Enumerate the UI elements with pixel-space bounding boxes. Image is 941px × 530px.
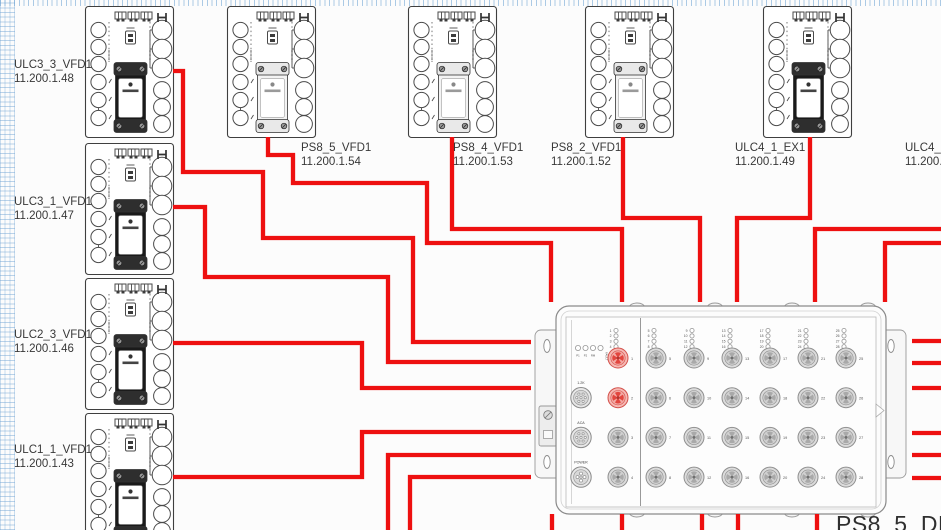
- usb-connector-icon: [268, 31, 278, 44]
- device-port-circle[interactable]: [154, 354, 171, 371]
- device-port-circle[interactable]: [294, 58, 314, 78]
- motor-starter-unit[interactable]: [256, 63, 289, 133]
- brand-logo-icon: [806, 82, 810, 86]
- svg-text:15: 15: [745, 436, 749, 440]
- brand-logo-icon: [128, 219, 132, 223]
- device-port-circle[interactable]: [414, 74, 429, 89]
- brand-logo-icon: [270, 82, 274, 86]
- svg-text:24: 24: [798, 345, 802, 349]
- device-label-PS8_4_VFD1: PS8_4_VFD111.200.1.53: [453, 142, 523, 169]
- device-port-circle[interactable]: [91, 481, 106, 496]
- device-port-circle[interactable]: [91, 382, 106, 397]
- bracket-hole: [888, 340, 894, 353]
- device-label-ULC1_1_VFD1: ULC1_1_VFD111.200.1.43: [14, 444, 92, 471]
- svg-text:26: 26: [859, 397, 863, 401]
- status-led: [583, 345, 588, 350]
- device-label-PS8_2_VFD1: PS8_2_VFD111.200.1.52: [551, 142, 621, 169]
- device-ip: 11.200.1: [905, 156, 941, 168]
- svg-text:8: 8: [648, 345, 650, 349]
- device-name: PS8_5_VFD1: [301, 142, 371, 154]
- device-label-PS8_5_VFD1: PS8_5_VFD111.200.1.54: [301, 142, 371, 169]
- device-port-circle[interactable]: [152, 157, 172, 177]
- device-port-circle[interactable]: [654, 116, 671, 133]
- svg-text:19: 19: [760, 340, 764, 344]
- svg-text:1.2K: 1.2K: [577, 381, 585, 385]
- device-port-circle[interactable]: [91, 429, 106, 444]
- device-port-circle[interactable]: [152, 311, 172, 331]
- device-ULC3_1_VFD1[interactable]: [86, 144, 174, 275]
- topology-diagram: P1P2RMFAULT12341234567856789101112910111…: [0, 0, 941, 530]
- device-port-circle[interactable]: [414, 56, 429, 71]
- bracket-hole: [544, 456, 550, 469]
- svg-text:12: 12: [684, 345, 688, 349]
- device-port-circle[interactable]: [296, 99, 313, 116]
- device-port-circle[interactable]: [152, 446, 172, 466]
- motor-starter-unit[interactable]: [114, 200, 147, 270]
- svg-text:22: 22: [821, 397, 825, 401]
- device-port-circle[interactable]: [152, 330, 172, 350]
- din-clip: [539, 406, 557, 446]
- device-port-circle[interactable]: [152, 195, 172, 215]
- svg-text:14: 14: [745, 397, 749, 401]
- device-port-circle[interactable]: [91, 364, 106, 379]
- svg-text:26: 26: [836, 334, 840, 338]
- device-port-circle[interactable]: [414, 22, 429, 37]
- device-PS8_2_VFD1[interactable]: [586, 7, 674, 138]
- device-port-circle[interactable]: [91, 463, 106, 478]
- status-led: [598, 345, 603, 350]
- svg-text:POWER: POWER: [574, 461, 588, 465]
- device-port-circle[interactable]: [91, 211, 106, 226]
- svg-text:6: 6: [669, 397, 671, 401]
- svg-text:21: 21: [821, 357, 825, 361]
- svg-text:3: 3: [610, 340, 612, 344]
- device-port-circle[interactable]: [91, 229, 106, 244]
- svg-text:4: 4: [610, 345, 612, 349]
- device-port-circle[interactable]: [154, 371, 171, 388]
- device-port-circle[interactable]: [154, 506, 171, 523]
- device-name: ULC3_1_VFD1: [14, 196, 92, 208]
- svg-text:ACA: ACA: [577, 421, 585, 425]
- device-port-circle[interactable]: [652, 39, 672, 59]
- device-label-ULC3_3_VFD1: ULC3_3_VFD111.200.1.48: [14, 59, 92, 86]
- svg-text:25: 25: [836, 329, 840, 333]
- device-port-circle[interactable]: [654, 82, 671, 99]
- device-name: PS8_4_VFD1: [453, 142, 523, 154]
- device-port-circle[interactable]: [591, 56, 606, 71]
- device-name: ULC2_3_VFD1: [14, 329, 92, 341]
- device-label-ULC4_3_: ULC4_3_11.200.1: [905, 142, 941, 169]
- device-port-circle[interactable]: [154, 116, 171, 133]
- svg-text:17: 17: [760, 329, 764, 333]
- svg-text:9: 9: [707, 357, 709, 361]
- device-port-circle[interactable]: [91, 39, 106, 54]
- usb-connector-icon: [126, 31, 136, 44]
- device-port-circle[interactable]: [475, 58, 495, 78]
- svg-text:28: 28: [859, 476, 863, 480]
- device-port-circle[interactable]: [591, 110, 606, 125]
- device-label-ULC4_1_EX1: ULC4_1_EX111.200.1.49: [735, 142, 805, 169]
- usb-connector-icon: [126, 303, 136, 316]
- device-port-circle[interactable]: [296, 116, 313, 133]
- device-port-circle[interactable]: [91, 446, 106, 461]
- device-port-circle[interactable]: [414, 110, 429, 125]
- device-port-circle[interactable]: [154, 82, 171, 99]
- brand-logo-icon: [628, 82, 632, 86]
- device-ULC1_1_VFD1[interactable]: [86, 414, 174, 530]
- svg-text:13: 13: [722, 329, 726, 333]
- module-label: PS8_5_DRM1: [836, 511, 941, 530]
- device-port-circle[interactable]: [769, 56, 784, 71]
- device-port-circle[interactable]: [154, 253, 171, 270]
- status-led: [590, 345, 595, 350]
- brand-logo-icon: [128, 82, 132, 86]
- drm-module[interactable]: P1P2RMFAULT12341234567856789101112910111…: [535, 303, 906, 517]
- device-port-circle[interactable]: [91, 74, 106, 89]
- svg-text:11: 11: [707, 436, 711, 440]
- device-port-circle[interactable]: [294, 39, 314, 59]
- device-port-circle[interactable]: [154, 388, 171, 405]
- svg-text:20: 20: [783, 476, 787, 480]
- brand-logo-icon: [451, 82, 455, 86]
- svg-text:4: 4: [631, 476, 633, 480]
- device-name: ULC4_3_: [905, 142, 941, 154]
- device-port-circle[interactable]: [91, 56, 106, 71]
- svg-text:13: 13: [745, 357, 749, 361]
- usb-connector-icon: [449, 31, 459, 44]
- svg-text:22: 22: [798, 334, 802, 338]
- device-port-circle[interactable]: [830, 39, 850, 59]
- device-port-circle[interactable]: [769, 110, 784, 125]
- device-port-circle[interactable]: [832, 116, 849, 133]
- svg-text:1: 1: [610, 329, 612, 333]
- device-port-circle[interactable]: [233, 22, 248, 37]
- device-port-circle[interactable]: [154, 236, 171, 253]
- device-port-circle[interactable]: [769, 39, 784, 54]
- device-port-circle[interactable]: [477, 99, 494, 116]
- device-name: ULC1_1_VFD1: [14, 444, 92, 456]
- svg-text:18: 18: [760, 334, 764, 338]
- device-port-circle[interactable]: [477, 82, 494, 99]
- brand-logo-icon: [128, 489, 132, 493]
- device-port-circle[interactable]: [830, 20, 850, 40]
- device-port-circle[interactable]: [832, 82, 849, 99]
- status-led: [575, 345, 580, 350]
- device-name: PS8_2_VFD1: [551, 142, 621, 154]
- device-ip: 11.200.1.53: [453, 156, 513, 168]
- device-port-circle[interactable]: [152, 176, 172, 196]
- cable-module-left-down-2[interactable]: [410, 477, 531, 530]
- device-port-circle[interactable]: [769, 92, 784, 107]
- device-port-circle[interactable]: [91, 110, 106, 125]
- device-ip: 11.200.1.54: [301, 156, 361, 168]
- svg-text:19: 19: [783, 436, 787, 440]
- svg-text:10: 10: [684, 334, 688, 338]
- device-port-circle[interactable]: [591, 92, 606, 107]
- device-port-circle[interactable]: [91, 193, 106, 208]
- device-port-circle[interactable]: [91, 328, 106, 343]
- device-port-circle[interactable]: [152, 20, 172, 40]
- device-port-circle[interactable]: [154, 489, 171, 506]
- device-port-circle[interactable]: [475, 39, 495, 59]
- device-port-circle[interactable]: [233, 92, 248, 107]
- svg-text:24: 24: [821, 476, 825, 480]
- device-port-circle[interactable]: [832, 99, 849, 116]
- bracket-hole: [888, 456, 894, 469]
- device-port-circle[interactable]: [477, 116, 494, 133]
- svg-text:2: 2: [631, 397, 633, 401]
- motor-starter-unit[interactable]: [792, 63, 825, 133]
- device-port-circle[interactable]: [91, 346, 106, 361]
- device-ip: 11.200.1.49: [735, 156, 795, 168]
- device-port-circle[interactable]: [152, 58, 172, 78]
- svg-text:5: 5: [648, 329, 650, 333]
- device-port-circle[interactable]: [91, 517, 106, 530]
- device-port-circle[interactable]: [152, 39, 172, 59]
- device-ULC3_3_VFD1[interactable]: [86, 7, 174, 138]
- motor-starter-unit[interactable]: [437, 63, 470, 133]
- svg-text:3: 3: [631, 436, 633, 440]
- device-port-circle[interactable]: [91, 294, 106, 309]
- device-port-circle[interactable]: [154, 99, 171, 116]
- cable-right-edge-2[interactable]: [885, 243, 941, 302]
- svg-text:6: 6: [648, 334, 650, 338]
- svg-text:2: 2: [610, 334, 612, 338]
- svg-text:15: 15: [722, 340, 726, 344]
- usb-connector-icon: [126, 168, 136, 181]
- svg-text:P1: P1: [576, 354, 580, 358]
- motor-starter-unit[interactable]: [114, 63, 147, 133]
- svg-text:17: 17: [783, 357, 787, 361]
- device-PS8_5_VFD1[interactable]: [228, 7, 316, 138]
- svg-text:23: 23: [821, 436, 825, 440]
- svg-text:16: 16: [745, 476, 749, 480]
- device-port-circle[interactable]: [152, 427, 172, 447]
- diagram-canvas: P1P2RMFAULT12341234567856789101112910111…: [0, 0, 941, 530]
- device-label-ULC3_1_VFD1: ULC3_1_VFD111.200.1.47: [14, 196, 92, 223]
- device-port-circle[interactable]: [414, 92, 429, 107]
- svg-text:16: 16: [722, 345, 726, 349]
- device-port-circle[interactable]: [591, 22, 606, 37]
- motor-starter-unit[interactable]: [114, 335, 147, 405]
- svg-text:7: 7: [648, 340, 650, 344]
- device-port-circle[interactable]: [233, 110, 248, 125]
- svg-text:5: 5: [669, 357, 671, 361]
- cable-right-edge-1[interactable]: [815, 229, 941, 302]
- motor-starter-unit[interactable]: [114, 470, 147, 530]
- usb-connector-icon: [804, 31, 814, 44]
- svg-text:18: 18: [783, 397, 787, 401]
- device-port-circle[interactable]: [769, 22, 784, 37]
- svg-text:11: 11: [684, 340, 688, 344]
- cable-ULC2_3_VFD1[interactable]: [173, 343, 531, 388]
- device-port-circle[interactable]: [91, 92, 106, 107]
- device-port-circle[interactable]: [475, 20, 495, 40]
- device-ip: 11.200.1.47: [14, 210, 74, 222]
- device-port-circle[interactable]: [91, 159, 106, 174]
- svg-text:8: 8: [669, 476, 671, 480]
- device-PS8_4_VFD1[interactable]: [409, 7, 497, 138]
- svg-text:9: 9: [686, 329, 688, 333]
- svg-text:27: 27: [859, 436, 863, 440]
- device-ip: 11.200.1.48: [14, 73, 74, 85]
- device-label-ULC2_3_VFD1: ULC2_3_VFD111.200.1.46: [14, 329, 92, 356]
- svg-text:7: 7: [669, 436, 671, 440]
- usb-connector-icon: [126, 438, 136, 451]
- device-port-circle[interactable]: [830, 58, 850, 78]
- device-port-circle[interactable]: [91, 499, 106, 514]
- device-port-circle[interactable]: [769, 74, 784, 89]
- svg-text:23: 23: [798, 340, 802, 344]
- svg-text:21: 21: [798, 329, 802, 333]
- device-port-circle[interactable]: [91, 22, 106, 37]
- device-name: ULC3_3_VFD1: [14, 59, 92, 71]
- device-port-circle[interactable]: [296, 82, 313, 99]
- device-port-circle[interactable]: [154, 219, 171, 236]
- device-port-circle[interactable]: [91, 247, 106, 262]
- device-port-circle[interactable]: [652, 20, 672, 40]
- bracket-hole: [544, 340, 550, 353]
- svg-text:10: 10: [707, 397, 711, 401]
- cable-PS8_2_VFD1[interactable]: [623, 137, 700, 302]
- svg-text:28: 28: [836, 345, 840, 349]
- device-port-circle[interactable]: [233, 56, 248, 71]
- svg-text:27: 27: [836, 340, 840, 344]
- svg-text:12: 12: [707, 476, 711, 480]
- svg-text:20: 20: [760, 345, 764, 349]
- device-port-circle[interactable]: [591, 74, 606, 89]
- device-port-circle[interactable]: [152, 292, 172, 312]
- device-ip: 11.200.1.43: [14, 458, 74, 470]
- motor-starter-unit[interactable]: [614, 63, 647, 133]
- svg-text:1: 1: [631, 357, 633, 361]
- brand-logo-icon: [128, 354, 132, 358]
- svg-text:25: 25: [859, 357, 863, 361]
- device-port-circle[interactable]: [233, 39, 248, 54]
- device-port-circle[interactable]: [91, 311, 106, 326]
- device-port-circle[interactable]: [591, 39, 606, 54]
- device-ULC4_1_EX1[interactable]: [764, 7, 852, 138]
- device-port-circle[interactable]: [91, 176, 106, 191]
- device-port-circle[interactable]: [654, 99, 671, 116]
- usb-connector-icon: [626, 31, 636, 44]
- svg-text:P2: P2: [584, 354, 588, 358]
- device-ip: 11.200.1.52: [551, 156, 611, 168]
- device-port-circle[interactable]: [152, 465, 172, 485]
- device-ip: 11.200.1.46: [14, 343, 74, 355]
- device-name: ULC4_1_EX1: [735, 142, 805, 154]
- device-port-circle[interactable]: [414, 39, 429, 54]
- svg-text:RM: RM: [591, 354, 596, 358]
- svg-text:14: 14: [722, 334, 726, 338]
- device-port-circle[interactable]: [294, 20, 314, 40]
- device-port-circle[interactable]: [652, 58, 672, 78]
- device-port-circle[interactable]: [233, 74, 248, 89]
- device-ULC2_3_VFD1[interactable]: [86, 279, 174, 410]
